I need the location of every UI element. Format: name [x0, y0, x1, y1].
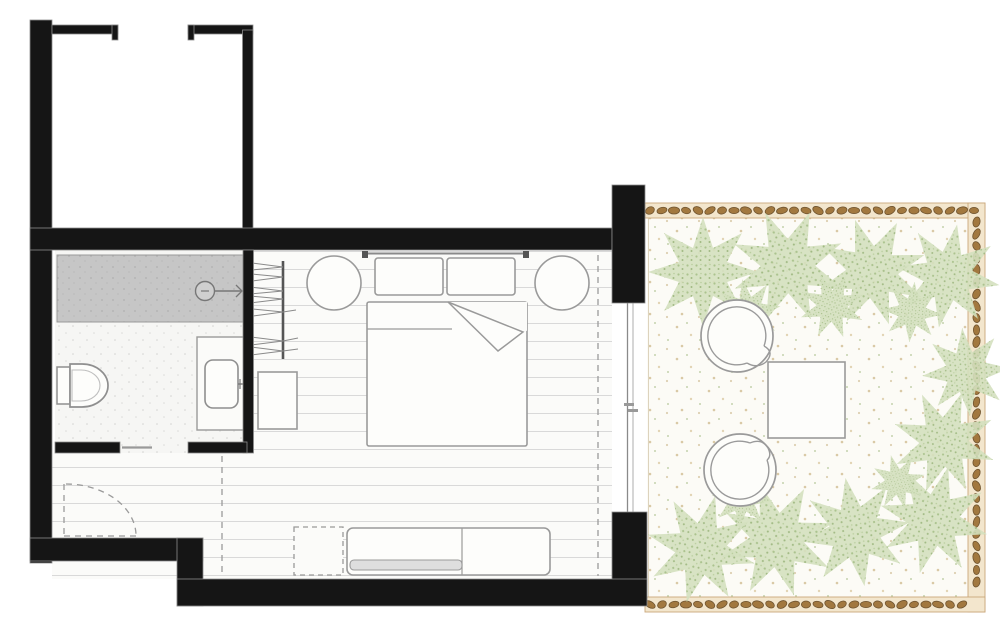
lounge-chair-bottom	[704, 434, 776, 506]
wall-top-stub-a	[52, 25, 118, 34]
vanity-sink	[197, 337, 246, 430]
pebble	[801, 601, 810, 608]
pebble	[680, 601, 691, 608]
pillow-left	[375, 258, 443, 295]
pebble	[969, 207, 978, 213]
pebble	[973, 325, 979, 335]
headboard-post-right	[523, 251, 529, 258]
pebble	[848, 207, 859, 213]
floor-plan-canvas	[0, 0, 1000, 636]
tv-console-group	[294, 527, 550, 575]
pebble	[729, 207, 739, 213]
wall-stub-a-end	[112, 25, 118, 40]
lounge-chair-top	[701, 300, 773, 372]
wall-bathroom-door-stub-right	[188, 442, 247, 453]
wall-pier-top	[612, 185, 645, 303]
pebble	[668, 207, 679, 214]
pebble	[973, 505, 980, 515]
pebble	[741, 601, 751, 607]
pebble	[860, 601, 871, 607]
floor-plan-drawing	[0, 0, 1000, 636]
wall-left	[30, 20, 52, 563]
toilet	[57, 364, 108, 407]
tv	[350, 560, 462, 570]
shower-area	[57, 255, 243, 322]
luggage-bench	[258, 372, 297, 429]
pebble	[909, 207, 919, 214]
headboard-post-left	[362, 251, 368, 258]
terrace-side-table	[768, 362, 845, 438]
stool-dashed	[294, 527, 343, 575]
sliding-glass-door	[624, 303, 638, 512]
wall-bathroom-door-stub-left	[55, 442, 120, 453]
pebble	[921, 601, 931, 608]
pillow-right	[447, 258, 515, 295]
wall-stub-b-end	[188, 25, 194, 40]
wall-closet-right	[243, 30, 254, 230]
wall-bottom	[177, 579, 647, 606]
wall-bathroom-bedroom	[243, 250, 254, 453]
door-handle-2	[628, 409, 638, 412]
wall-main-horizontal	[30, 228, 612, 250]
pebble	[973, 565, 979, 574]
door-handle-1	[624, 403, 634, 406]
nightstand-left	[307, 256, 361, 310]
pebble	[789, 207, 798, 214]
nightstand-right	[535, 256, 589, 310]
